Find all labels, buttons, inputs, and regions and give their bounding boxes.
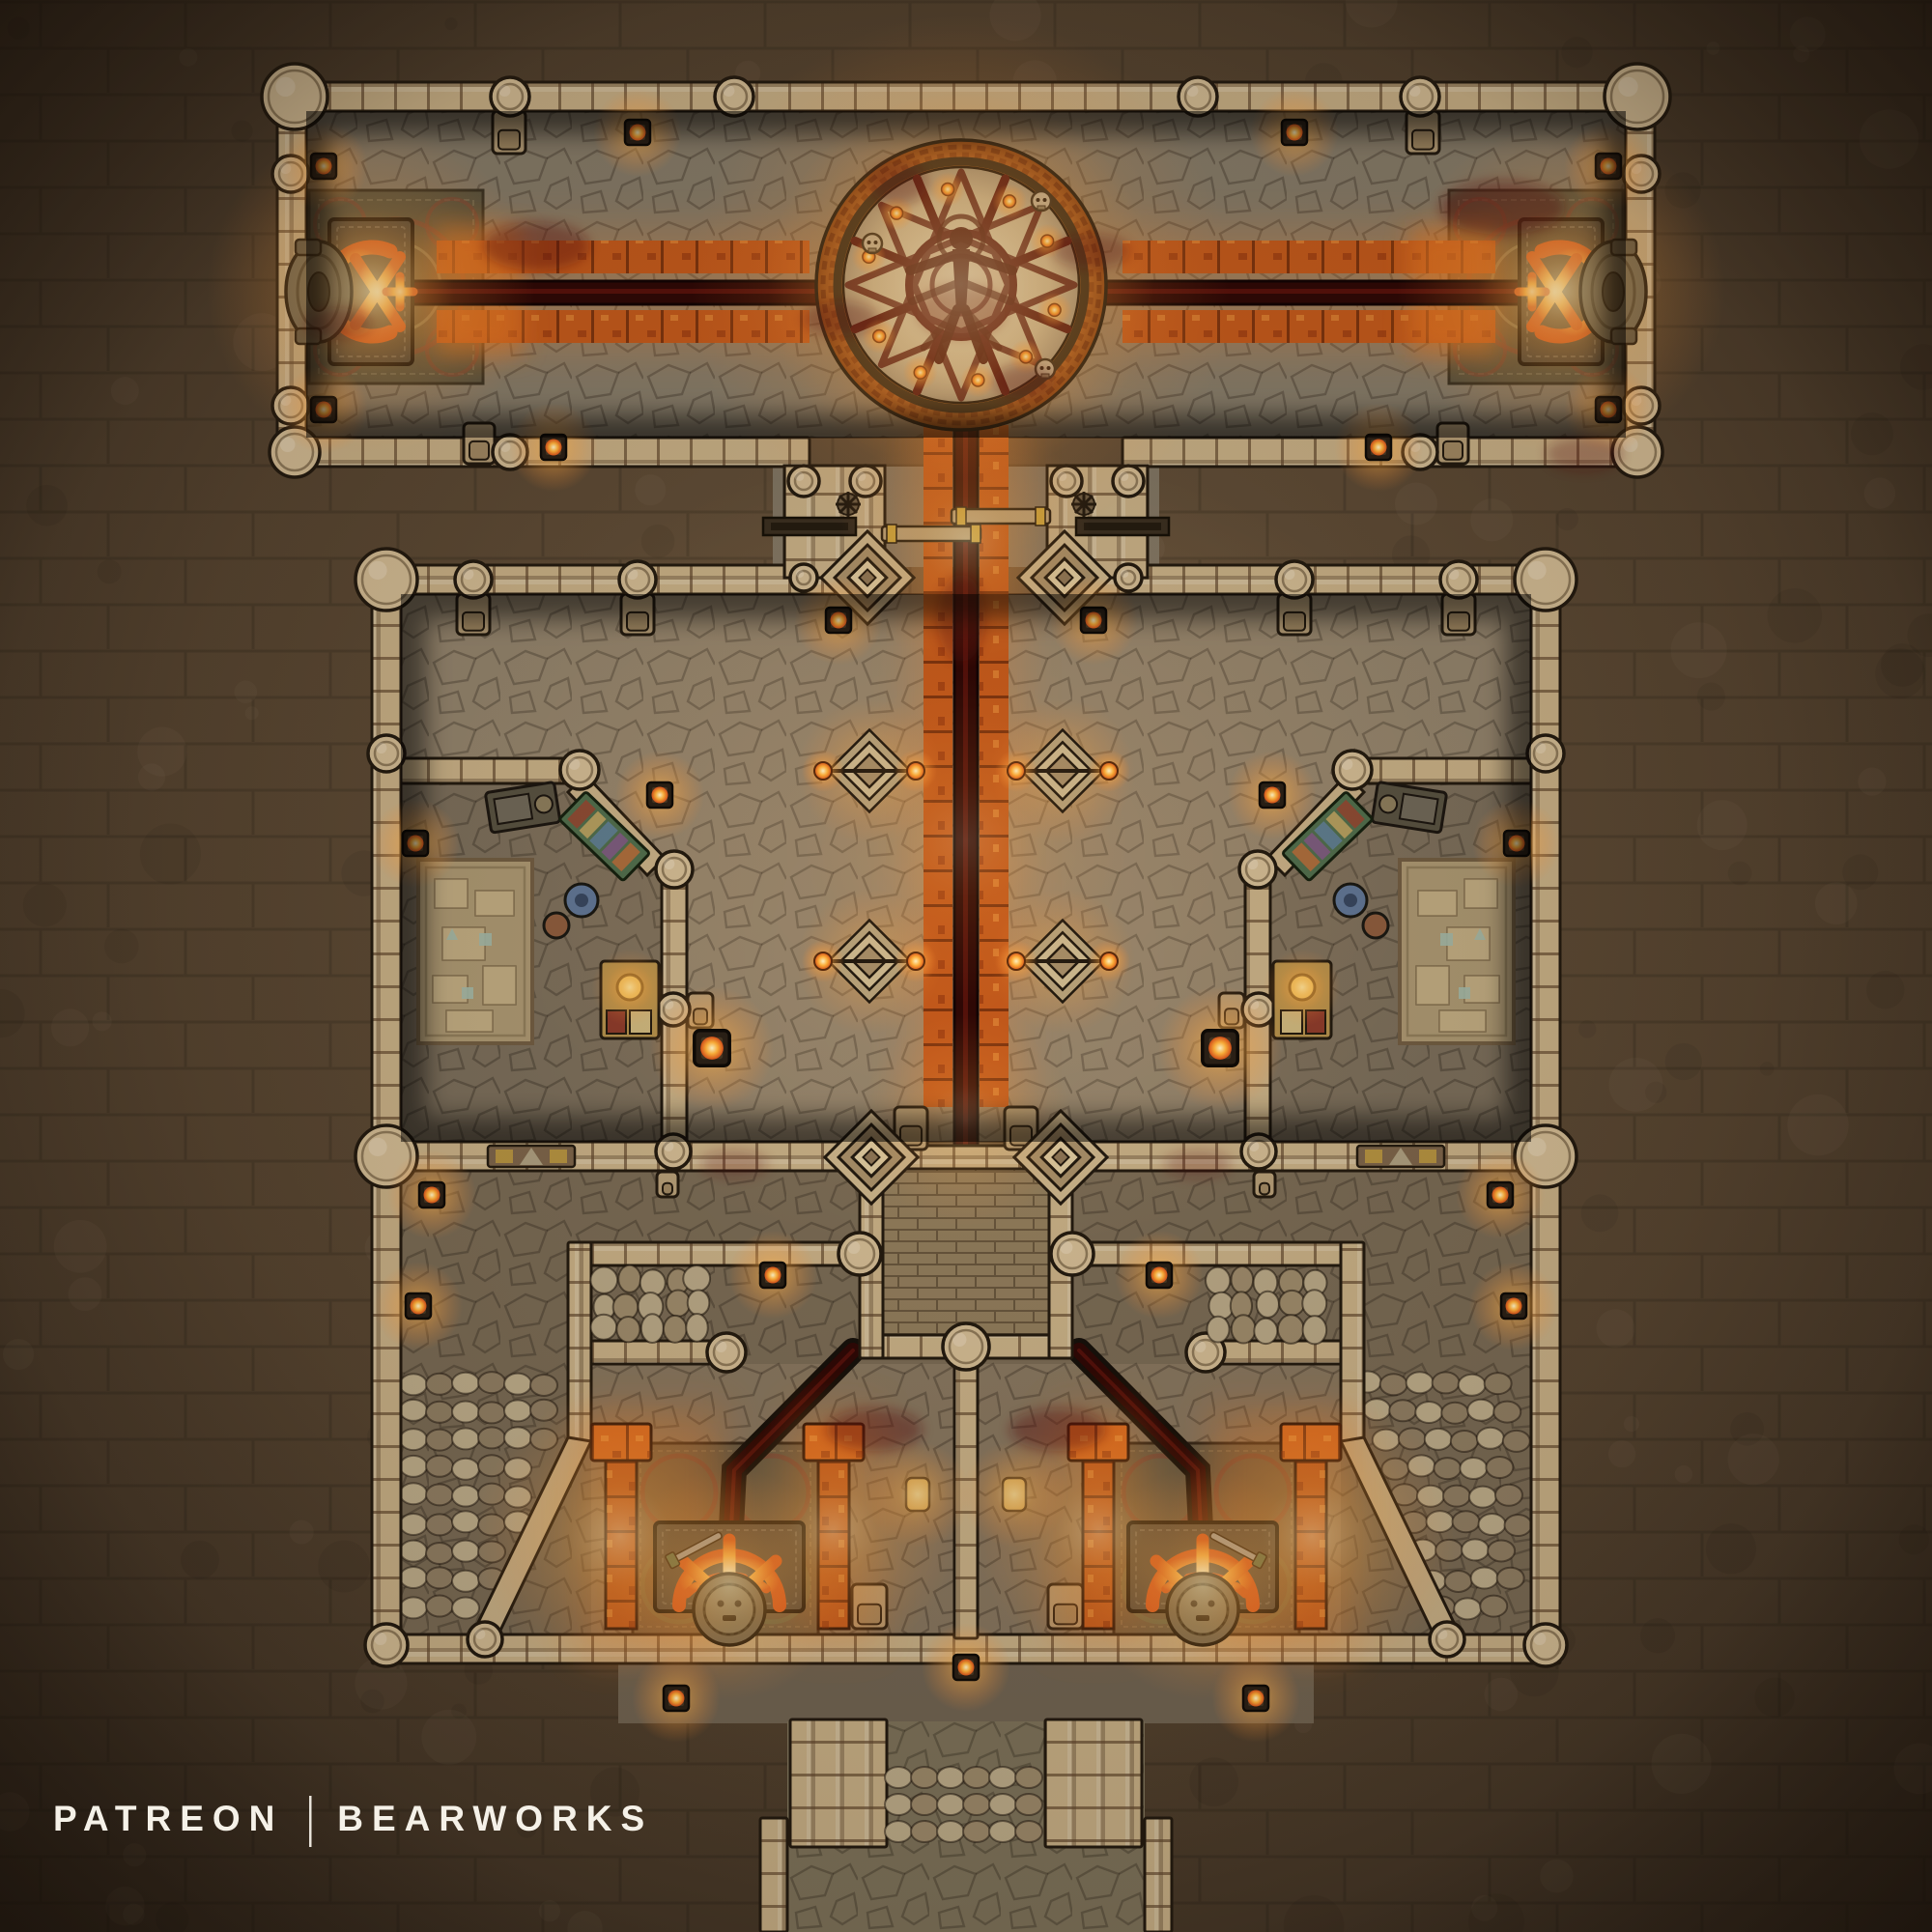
dungeon-map (0, 0, 1932, 1932)
footer-brand: PATREON | BEARWORKS (53, 1799, 653, 1839)
bearworks-label: BEARWORKS (337, 1799, 653, 1839)
patreon-label: PATREON (53, 1799, 283, 1839)
lighting-overlay (0, 0, 1932, 1932)
footer-divider: | (306, 1788, 314, 1851)
dungeon-map-page: PATREON | BEARWORKS (0, 0, 1932, 1932)
